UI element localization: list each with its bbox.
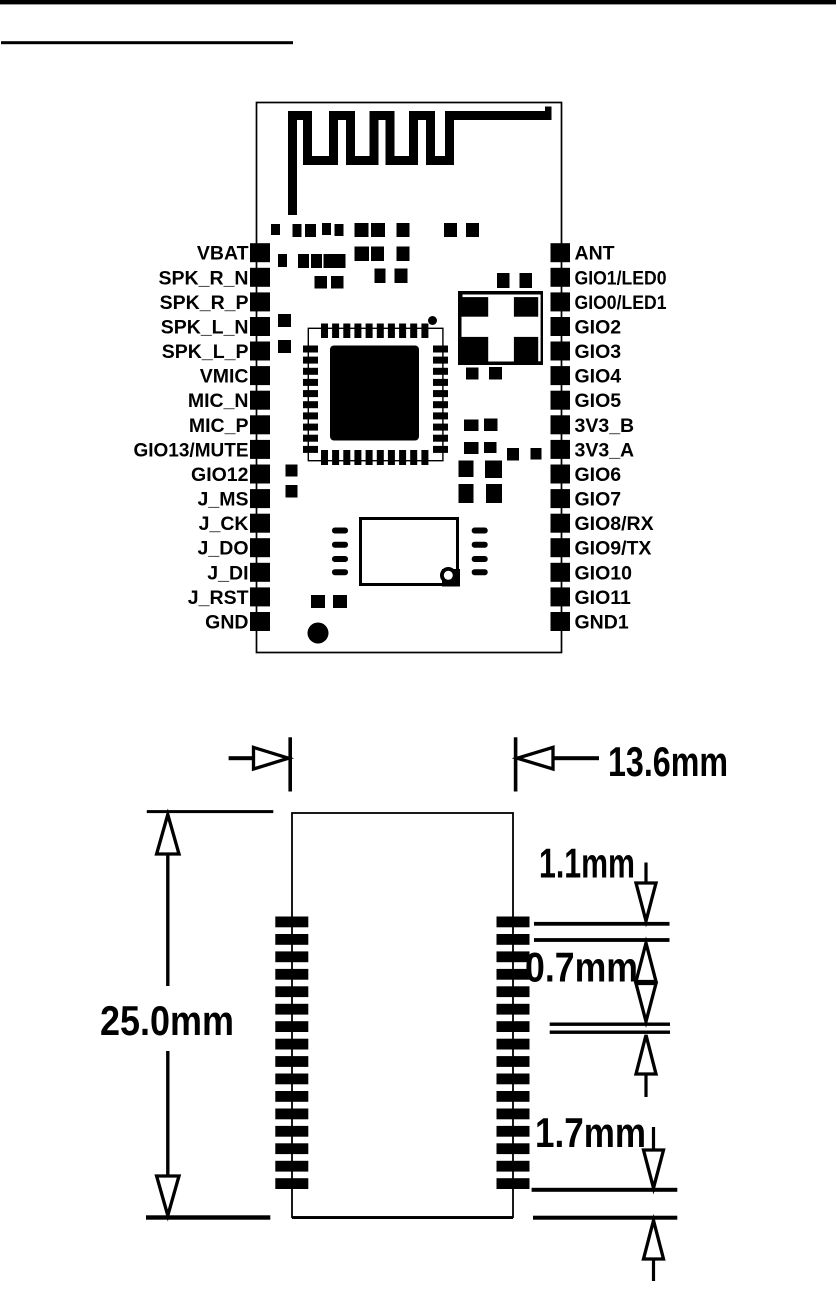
svg-text:MIC_N: MIC_N [188, 390, 249, 412]
svg-text:GIO12: GIO12 [191, 464, 249, 486]
svg-text:GIO2: GIO2 [575, 317, 622, 339]
svg-text:ANT: ANT [575, 243, 615, 265]
svg-text:3V3_B: 3V3_B [575, 415, 635, 437]
svg-text:GIO0/LED1: GIO0/LED1 [575, 292, 667, 314]
svg-text:J_MS: J_MS [198, 489, 249, 511]
svg-text:3V3_A: 3V3_A [575, 439, 635, 461]
svg-text:J_DI: J_DI [207, 562, 248, 584]
svg-text:SPK_R_P: SPK_R_P [160, 292, 249, 314]
svg-text:VMIC: VMIC [200, 366, 249, 388]
svg-text:GIO5: GIO5 [575, 390, 622, 412]
svg-text:J_CK: J_CK [199, 513, 249, 535]
svg-text:25.0mm: 25.0mm [100, 997, 234, 1044]
svg-text:GIO6: GIO6 [575, 464, 622, 486]
svg-text:GIO4: GIO4 [575, 366, 622, 388]
svg-text:1.1mm: 1.1mm [539, 840, 635, 887]
svg-text:SPK_L_N: SPK_L_N [161, 317, 249, 339]
svg-text:J_DO: J_DO [198, 538, 249, 560]
svg-text:0.7mm: 0.7mm [525, 944, 638, 991]
svg-text:GIO10: GIO10 [575, 562, 633, 584]
svg-text:J_RST: J_RST [188, 587, 249, 609]
svg-text:13.6mm: 13.6mm [608, 738, 728, 785]
svg-text:GIO11: GIO11 [575, 587, 632, 609]
svg-text:GIO13/MUTE: GIO13/MUTE [134, 439, 249, 461]
svg-text:SPK_L_P: SPK_L_P [162, 341, 249, 363]
svg-text:GIO8/RX: GIO8/RX [575, 513, 654, 535]
svg-text:1.7mm: 1.7mm [535, 1109, 646, 1156]
svg-text:MIC_P: MIC_P [189, 415, 249, 437]
svg-text:GIO3: GIO3 [575, 341, 622, 363]
svg-text:GND1: GND1 [575, 612, 629, 634]
svg-text:GIO7: GIO7 [575, 489, 622, 511]
svg-text:VBAT: VBAT [197, 243, 249, 265]
svg-text:GIO1/LED0: GIO1/LED0 [575, 267, 667, 289]
svg-text:SPK_R_N: SPK_R_N [159, 267, 249, 289]
svg-text:GIO9/TX: GIO9/TX [575, 538, 652, 560]
svg-text:GND: GND [205, 612, 248, 634]
